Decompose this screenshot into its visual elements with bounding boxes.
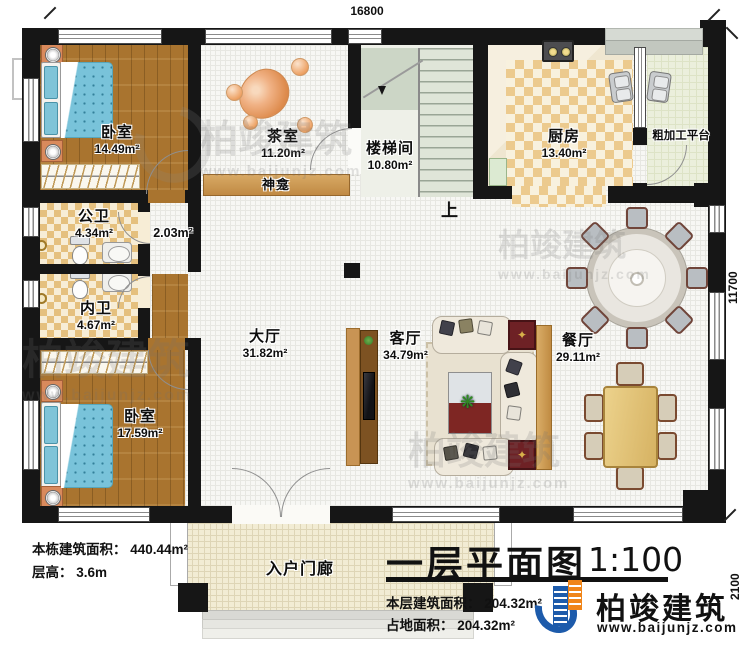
room-name: 粗加工平台 [645,130,717,144]
window [573,507,683,522]
tv-screen [363,372,375,420]
company-logo [536,580,592,640]
room-area: 10.80m² [350,158,430,172]
sofa-pillow [458,318,474,334]
tea-art-dot [291,58,309,76]
sofa-pillow [482,445,497,460]
room-label-corridor: 2.03m² [143,226,203,241]
lamp-icon [45,384,61,400]
nightstand [41,486,63,508]
fridge [489,158,507,186]
sofa-pillow [443,445,459,461]
porch-column [178,583,208,612]
window [23,207,39,237]
stair-arrow [378,86,386,95]
window [392,507,500,522]
rect-dining-table [603,386,658,468]
tv-wall-back [346,328,360,466]
room-label-porch: 入户门廊 [240,560,360,579]
toilet-bowl [72,246,88,265]
bed-pillow [44,406,58,444]
stove [542,40,574,62]
column [694,183,726,207]
sink-basin [653,75,670,89]
toilet-bowl [72,280,88,299]
window [58,29,162,44]
sink [102,242,132,263]
stair-treads [420,48,473,197]
closet [41,351,148,374]
room-label-platform: 粗加工平台 [645,130,717,144]
hallway-floor [152,274,188,338]
stair-rail [418,48,420,197]
wall-hall-left [188,167,201,272]
tea-art-dot [226,84,243,101]
wall-kitchen-platform [633,183,647,199]
dining-chair [566,267,588,289]
dining-chair [626,207,648,229]
burner-icon [548,47,558,57]
building-floor-height: 层高： 3.6m [32,561,107,581]
room-area: 2.03m² [143,226,203,241]
room-area: 17.59m² [100,426,180,440]
room-name: 楼梯间 [350,140,430,158]
room-name: 茶室 [243,128,323,146]
room-area: 29.11m² [538,350,618,364]
room-label-shrine: 神龛 [246,177,306,193]
sink-basin [615,88,632,102]
room-name: 餐厅 [538,332,618,350]
eave [605,40,703,55]
kitchen-tiles-spill [512,186,606,207]
wall-kitchen-bottom [473,186,512,199]
dining-chair [686,267,708,289]
room-name: 厨房 [524,128,604,146]
room-area: 31.82m² [225,346,305,360]
bed-pillow [44,446,58,484]
dimension-right: 11700 [726,240,740,304]
window [709,408,725,470]
dining-chair [657,394,677,422]
dimension-porch: 2100 [728,548,742,600]
lamp-icon [45,47,61,63]
nightstand [41,380,63,402]
kitchen-sink [608,71,634,104]
dim-tick-icon [44,7,57,20]
title-scale: 1:100 [588,540,683,579]
sofa-pillow [477,320,493,336]
room-label-dining: 餐厅 29.11m² [538,332,618,364]
room-label-kitchen: 厨房 13.40m² [524,128,604,160]
window [205,29,332,44]
building-total-area: 本栋建筑面积： 440.44m² [32,538,188,558]
floor-area-note: 本层建筑面积： 204.32m² [386,592,542,612]
room-label-private-bath: 内卫 4.67m² [56,300,136,332]
room-name: 客厅 [363,330,448,348]
footprint-note: 占地面积： 204.32m² [386,614,515,634]
room-label-bedroom2: 卧室 17.59m² [100,408,180,440]
teapot-icon [630,272,644,286]
dining-chair [616,362,644,386]
room-name: 神龛 [246,177,306,193]
coffee-table: ❋ [448,372,492,434]
company-website: www.baijunjz.com [597,620,738,635]
wall-stair-right [473,45,488,197]
room-name: 大厅 [225,328,305,346]
wall-bath-divider [22,264,138,274]
plant-icon: ❋ [460,393,475,411]
burner-icon [561,47,571,57]
dining-chair [626,327,648,349]
logo-tower-icon [553,586,568,626]
window [23,280,39,308]
sink-basin [614,75,631,89]
window [709,205,725,233]
red-mat: ✦ [508,320,536,350]
room-area: 13.40m² [524,146,604,160]
nightstand [41,140,63,162]
room-label-living: 客厅 34.79m² [363,330,448,362]
dining-chair [616,466,644,490]
dining-chair [584,394,604,422]
room-label-hall: 大厅 31.82m² [225,328,305,360]
dining-chair [657,432,677,460]
room-area: 11.20m² [243,146,323,160]
column [344,263,360,278]
room-name: 公卫 [54,208,134,226]
room-name: 卧室 [100,408,180,426]
bed-pillow [44,66,58,99]
room-name: 内卫 [56,300,136,318]
sink-basin [108,246,130,262]
room-area: 4.67m² [56,318,136,332]
closet [41,164,140,189]
platform-sink [646,71,672,104]
window [23,400,39,470]
dining-chair [584,432,604,460]
room-area: 34.79m² [363,348,448,362]
bed-pillow [44,102,58,135]
lamp-icon [45,490,61,506]
window [58,507,150,522]
red-mat: ✦ [508,440,536,470]
room-area: 4.34m² [54,226,134,240]
window [348,29,382,44]
sofa-pillow [506,405,522,421]
room-label-tea-room: 茶室 11.20m² [243,128,323,160]
pass-through-window [634,47,646,128]
nightstand [41,44,63,64]
stairs-up-label: 上 [441,196,458,221]
window [23,78,39,142]
dim-tick-icon [726,27,739,40]
door-opening [148,338,185,350]
sink-basin [651,88,668,102]
window [709,292,725,360]
lamp-icon [45,144,61,160]
room-label-public-bath: 公卫 4.34m² [54,208,134,240]
wall-bedroom2-right [188,350,201,506]
logo-tower-icon [568,580,582,610]
column [700,20,726,47]
bed-sheet [61,404,87,488]
dimension-top: 16800 [332,4,402,18]
title-underline [386,577,668,582]
room-label-stairwell: 楼梯间 10.80m² [350,140,430,172]
room-name: 入户门廊 [240,560,360,579]
column [683,490,726,523]
floor-plan: ❋ ✦ ✦ [0,0,750,648]
